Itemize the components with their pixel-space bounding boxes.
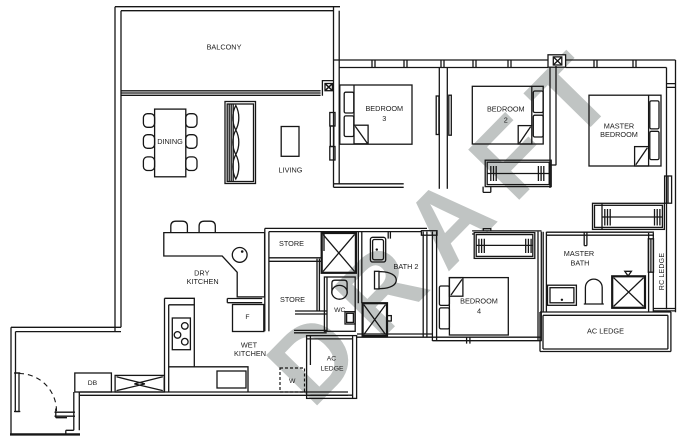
svg-text:DB: DB — [88, 380, 98, 387]
svg-text:2: 2 — [504, 116, 508, 125]
svg-text:STORE: STORE — [280, 295, 305, 304]
svg-text:AC: AC — [327, 355, 337, 362]
svg-text:BEDROOM: BEDROOM — [487, 105, 525, 114]
svg-text:KITCHEN: KITCHEN — [234, 349, 266, 358]
svg-text:BEDROOM: BEDROOM — [460, 297, 498, 306]
svg-text:LIVING: LIVING — [279, 165, 303, 174]
svg-text:STORE: STORE — [279, 239, 304, 248]
svg-text:BALCONY: BALCONY — [207, 42, 242, 51]
svg-text:WC: WC — [334, 307, 345, 314]
svg-text:RC LEDGE: RC LEDGE — [659, 253, 666, 291]
svg-text:KITCHEN: KITCHEN — [187, 277, 219, 286]
svg-text:3: 3 — [382, 114, 386, 123]
svg-text:BEDROOM: BEDROOM — [365, 104, 403, 113]
svg-text:MASTER: MASTER — [564, 249, 594, 258]
svg-text:4: 4 — [477, 307, 481, 316]
svg-text:BEDROOM: BEDROOM — [600, 130, 638, 139]
svg-text:BATH 2: BATH 2 — [393, 262, 418, 271]
svg-text:DINING: DINING — [157, 137, 183, 146]
svg-text:DRY: DRY — [194, 268, 209, 277]
svg-text:F: F — [245, 314, 249, 321]
svg-text:BATH: BATH — [571, 258, 590, 267]
svg-text:AC LEDGE: AC LEDGE — [587, 326, 624, 335]
svg-text:LEDGE: LEDGE — [320, 365, 344, 372]
svg-text:W: W — [289, 378, 296, 385]
